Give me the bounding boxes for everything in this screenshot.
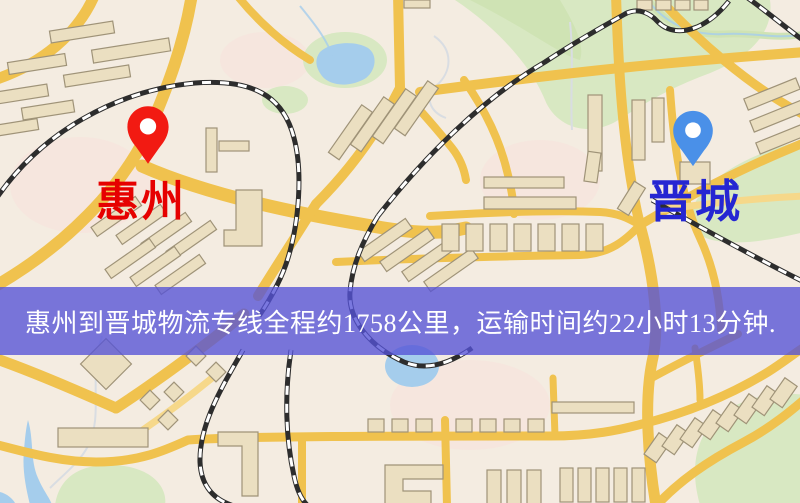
destination-label: 晋城 [648, 180, 742, 225]
origin-pin-icon[interactable] [125, 103, 171, 167]
route-info-text: 惠州到晋城物流专线全程约1758公里，运输时间约22小时13分钟. [0, 303, 776, 340]
route-info-banner: 惠州到晋城物流专线全程约1758公里，运输时间约22小时13分钟. [0, 287, 800, 355]
map-canvas [0, 0, 800, 503]
destination-pin-icon[interactable] [670, 109, 716, 168]
origin-label: 惠州 [96, 181, 186, 224]
map[interactable]: 惠州 晋城 惠州到晋城物流专线全程约1758公里，运输时间约22小时13分钟. [0, 0, 800, 503]
